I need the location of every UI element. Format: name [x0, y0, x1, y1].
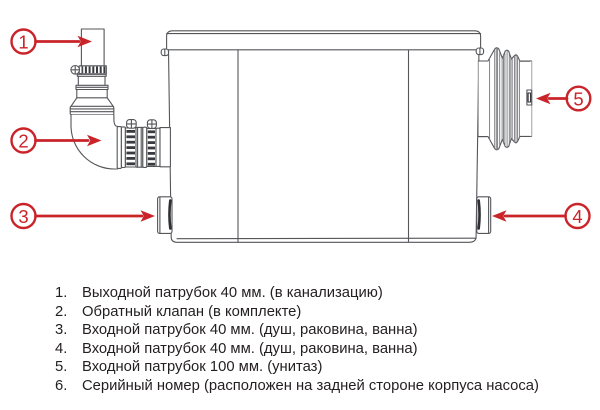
svg-text:3: 3: [18, 206, 28, 227]
svg-text:1: 1: [18, 31, 28, 52]
svg-text:5: 5: [573, 88, 583, 109]
svg-text:4: 4: [572, 206, 582, 227]
svg-text:2: 2: [18, 130, 28, 151]
